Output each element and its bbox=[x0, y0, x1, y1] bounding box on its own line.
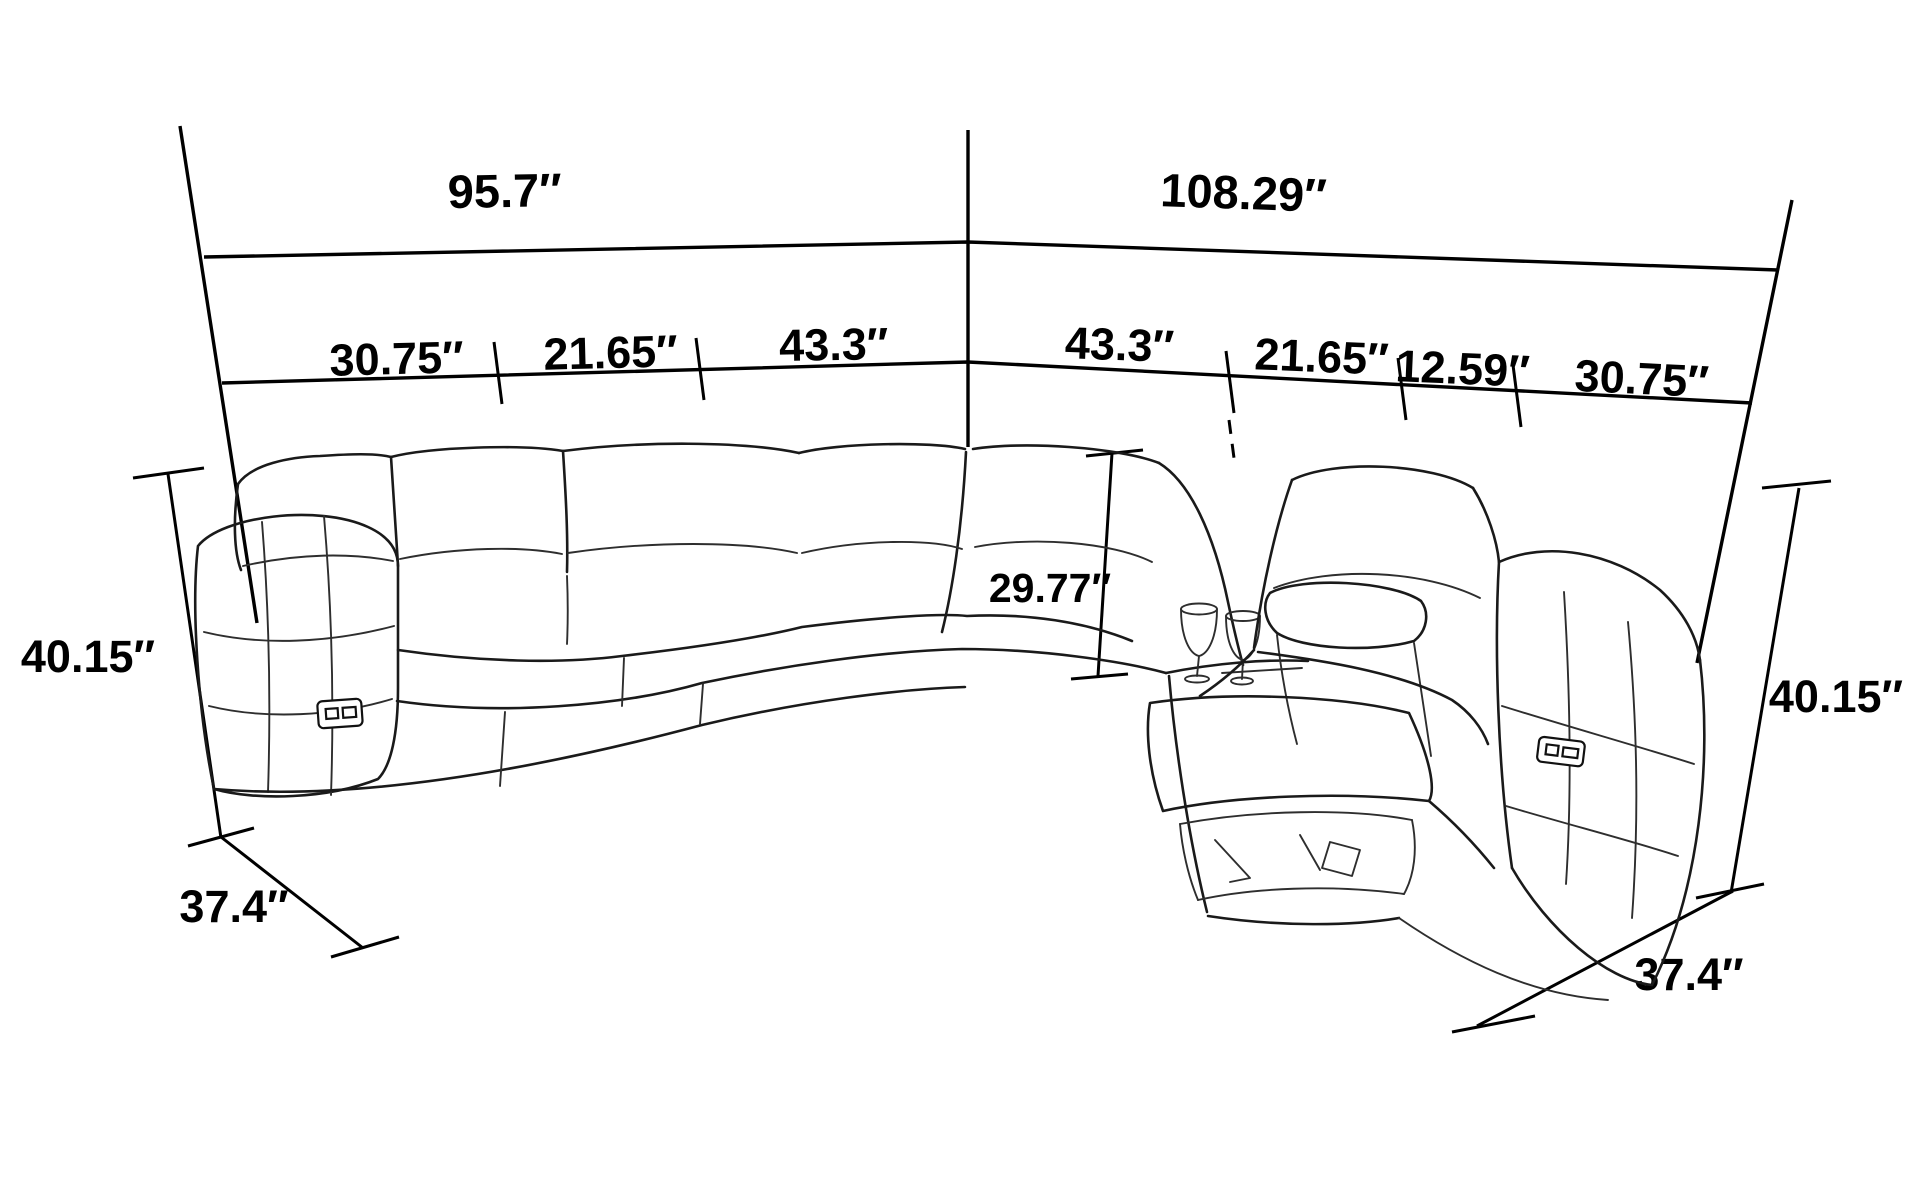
extension-line-left bbox=[180, 126, 257, 623]
label-seg-left-wide: 43.3″ bbox=[779, 318, 889, 371]
sofa-dimension-diagram: 95.7″ 108.29″ 30.75″ 21.65″ 43.3″ 43.3″ … bbox=[0, 0, 1920, 1200]
dimension-labels: 95.7″ 108.29″ 30.75″ 21.65″ 43.3″ 43.3″ … bbox=[21, 163, 1903, 1000]
right-recliner bbox=[1148, 466, 1608, 1000]
dimension-lines bbox=[133, 126, 1831, 1032]
label-back-height: 29.77″ bbox=[989, 565, 1111, 611]
label-total-width-right: 108.29″ bbox=[1160, 163, 1328, 222]
label-seg-right-seat: 21.65″ bbox=[1254, 328, 1390, 384]
corner-back-cushions bbox=[799, 444, 1243, 665]
label-seg-console: 12.59″ bbox=[1395, 340, 1531, 397]
recliner-mechanism bbox=[1215, 840, 1250, 882]
label-depth-right: 37.4″ bbox=[1634, 949, 1743, 1000]
label-seg-left-arm: 30.75″ bbox=[329, 331, 464, 385]
console bbox=[1166, 583, 1431, 912]
dim-depth-left-end-tick bbox=[331, 937, 399, 957]
label-total-width-left: 95.7″ bbox=[447, 163, 562, 218]
left-back-cushions bbox=[235, 444, 799, 644]
label-seg-right-arm: 30.75″ bbox=[1574, 350, 1711, 407]
label-depth-left: 37.4″ bbox=[179, 881, 288, 932]
diagram-canvas: 95.7″ 108.29″ 30.75″ 21.65″ 43.3″ 43.3″ … bbox=[0, 0, 1920, 1200]
dim-height-right-top-tick bbox=[1762, 481, 1831, 488]
tick-left-1 bbox=[494, 342, 502, 404]
tick-right-1-dashed bbox=[1229, 420, 1234, 458]
dim-line-total-width bbox=[204, 242, 1778, 270]
wine-glasses bbox=[1181, 604, 1302, 685]
right-power-button-panel bbox=[1537, 736, 1586, 766]
label-height-right: 40.15″ bbox=[1769, 671, 1903, 722]
right-arm bbox=[1497, 551, 1704, 985]
label-seg-right-wide: 43.3″ bbox=[1064, 317, 1175, 372]
label-seg-left-seat: 21.65″ bbox=[543, 325, 678, 379]
left-power-button-panel bbox=[317, 698, 363, 728]
tick-right-1 bbox=[1226, 351, 1234, 413]
sofa-illustration bbox=[195, 444, 1704, 1000]
label-height-left: 40.15″ bbox=[21, 631, 155, 682]
